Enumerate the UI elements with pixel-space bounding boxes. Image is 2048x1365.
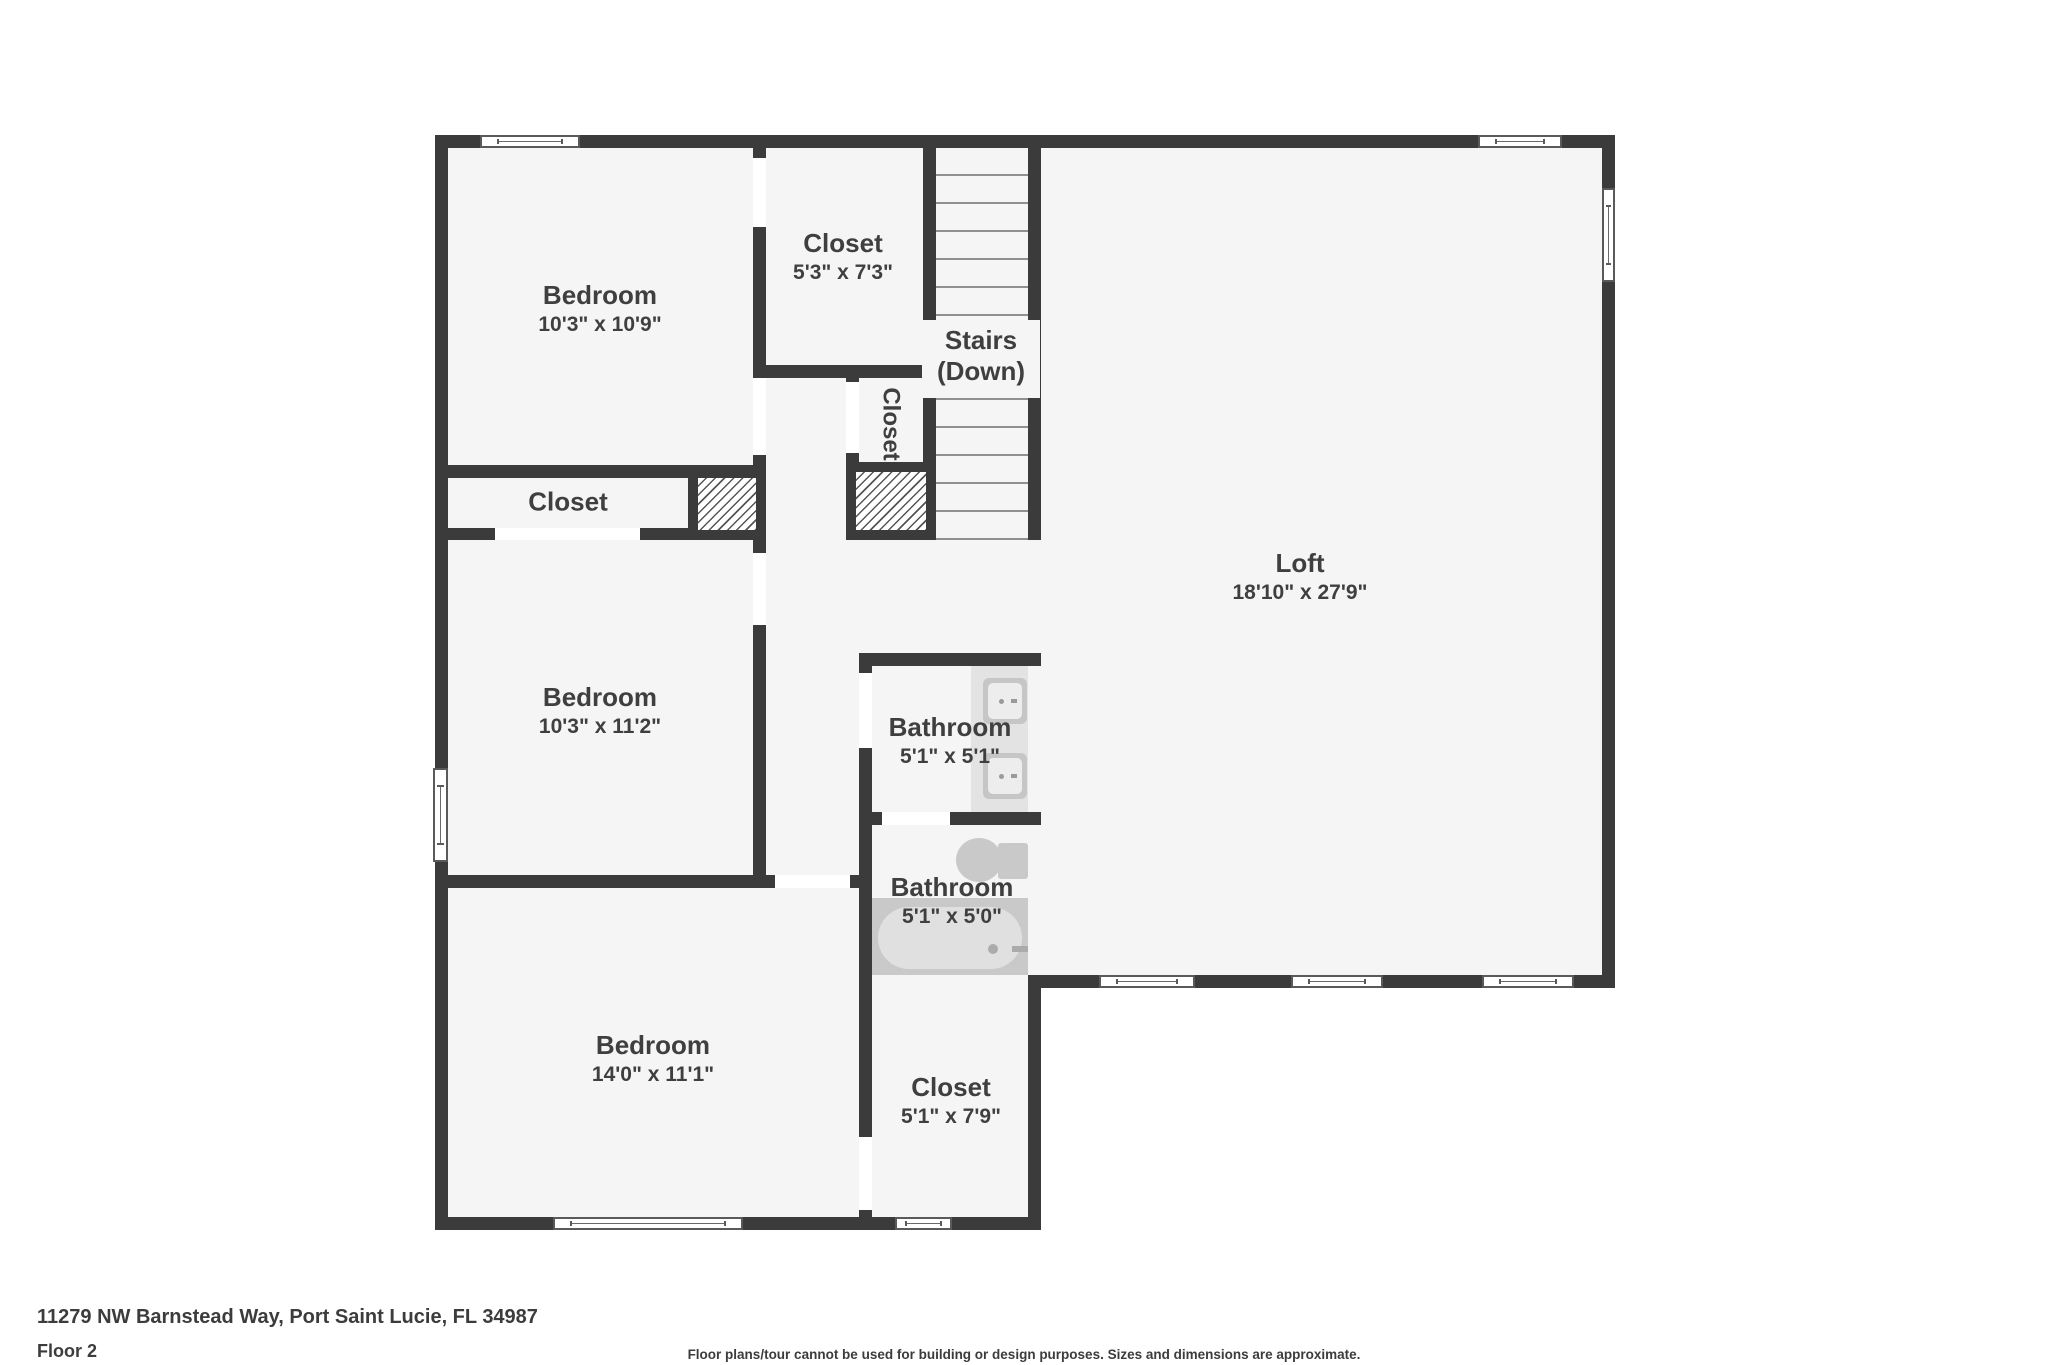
wall [859, 748, 872, 1137]
wall [859, 653, 872, 673]
room-label-closet-top: Closet 5'3" x 7'3" [793, 228, 893, 286]
window [1478, 135, 1562, 148]
room-label-closet-mid-left: Closet [528, 487, 607, 518]
wall [753, 625, 766, 888]
room-label-bedroom-mid-left: Bedroom 10'3" x 11'2" [539, 682, 661, 740]
room-label-stairs: Stairs (Down) [937, 325, 1025, 387]
room-label-bathroom-upper: Bathroom 5'1" x 5'1" [889, 712, 1012, 770]
floor-plan-page: Bedroom 10'3" x 10'9" Closet 5'3" x 7'3"… [0, 0, 2048, 1365]
room-label-bedroom-bottom: Bedroom 14'0" x 11'1" [592, 1030, 714, 1088]
wall [435, 528, 495, 540]
wall [846, 365, 859, 382]
room-label-bathroom-lower: Bathroom 5'1" x 5'0" [891, 872, 1014, 930]
wall [950, 812, 1041, 825]
window [553, 1217, 743, 1230]
hatch-area [846, 462, 936, 540]
window [1099, 975, 1195, 988]
window [895, 1217, 952, 1230]
wall [435, 135, 448, 1230]
window [1602, 188, 1615, 282]
room-label-closet-vertical: Closet [876, 387, 907, 460]
window [1291, 975, 1383, 988]
wall [859, 653, 1041, 666]
room-label-closet-bottom: Closet 5'1" x 7'9" [901, 1072, 1001, 1130]
door-opening [882, 812, 950, 825]
wall [753, 227, 766, 378]
door-opening [846, 382, 859, 453]
wall [435, 135, 1615, 148]
door-opening [859, 673, 872, 748]
wall [1028, 975, 1041, 1230]
hatch-area [688, 468, 766, 540]
door-opening [495, 528, 640, 540]
address-text: 11279 NW Barnstead Way, Port Saint Lucie… [37, 1306, 538, 1329]
door-opening [753, 158, 766, 227]
wall [753, 365, 936, 378]
wall [753, 148, 766, 158]
window [1482, 975, 1574, 988]
wall [859, 1210, 872, 1230]
room-label-bedroom-top-left: Bedroom 10'3" x 10'9" [538, 280, 661, 338]
door-opening [859, 1137, 872, 1210]
door-opening [753, 553, 766, 625]
wall [435, 875, 775, 888]
window [480, 135, 580, 148]
room-label-loft: Loft 18'10" x 27'9" [1232, 548, 1367, 606]
disclaimer-text: Floor plans/tour cannot be used for buil… [0, 1347, 2048, 1362]
window [433, 768, 448, 862]
door-opening [753, 378, 766, 455]
door-opening [775, 875, 850, 888]
